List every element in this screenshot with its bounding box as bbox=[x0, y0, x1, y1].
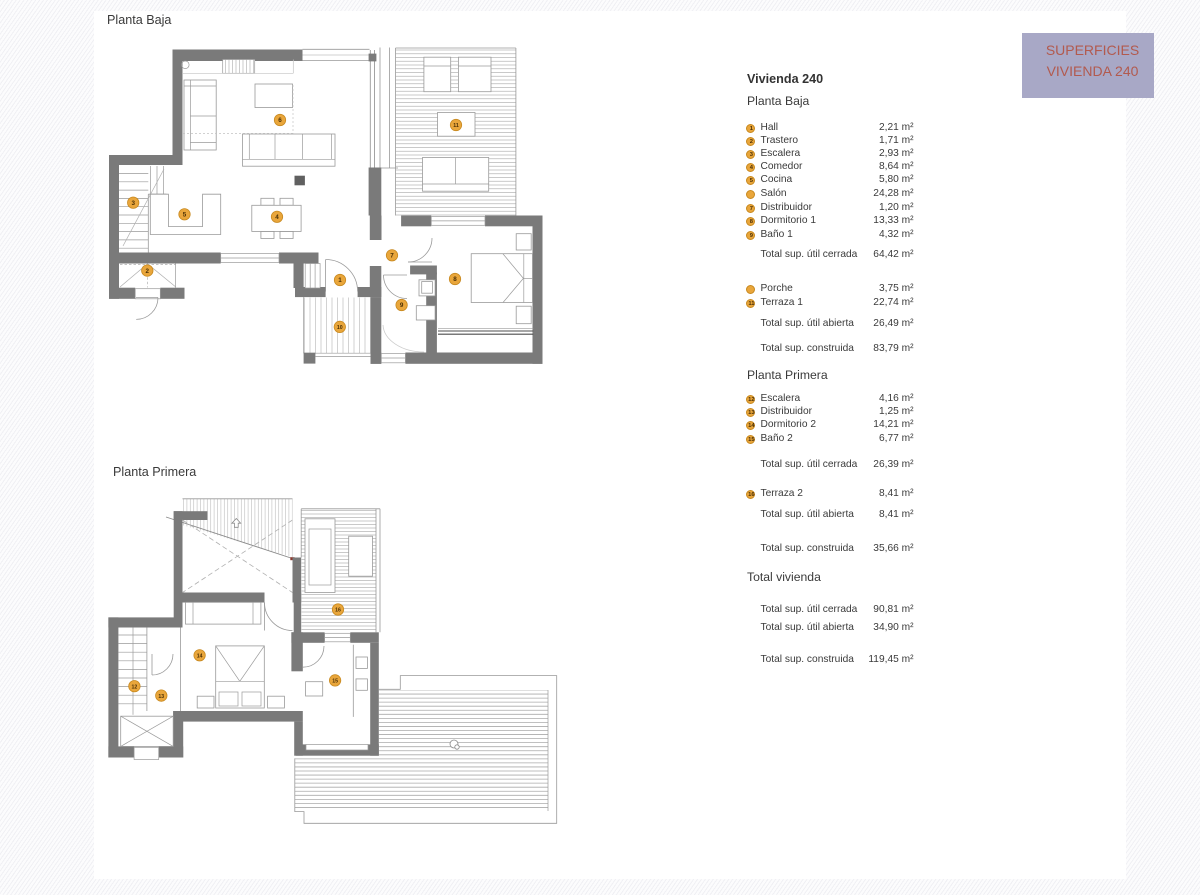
svg-text:5: 5 bbox=[183, 212, 187, 219]
svg-text:15: 15 bbox=[332, 679, 338, 685]
svg-text:4: 4 bbox=[275, 214, 279, 221]
svg-text:16: 16 bbox=[335, 608, 341, 614]
svg-text:6: 6 bbox=[278, 117, 282, 124]
svg-text:3: 3 bbox=[131, 200, 135, 207]
svg-text:9: 9 bbox=[400, 302, 404, 309]
svg-text:10: 10 bbox=[337, 325, 343, 331]
svg-text:8: 8 bbox=[453, 276, 457, 283]
svg-text:13: 13 bbox=[158, 694, 164, 700]
svg-text:1: 1 bbox=[338, 277, 342, 284]
svg-text:14: 14 bbox=[197, 654, 203, 660]
svg-text:7: 7 bbox=[390, 253, 394, 260]
svg-text:11: 11 bbox=[453, 123, 459, 129]
svg-text:2: 2 bbox=[146, 268, 150, 275]
svg-text:12: 12 bbox=[132, 684, 138, 690]
